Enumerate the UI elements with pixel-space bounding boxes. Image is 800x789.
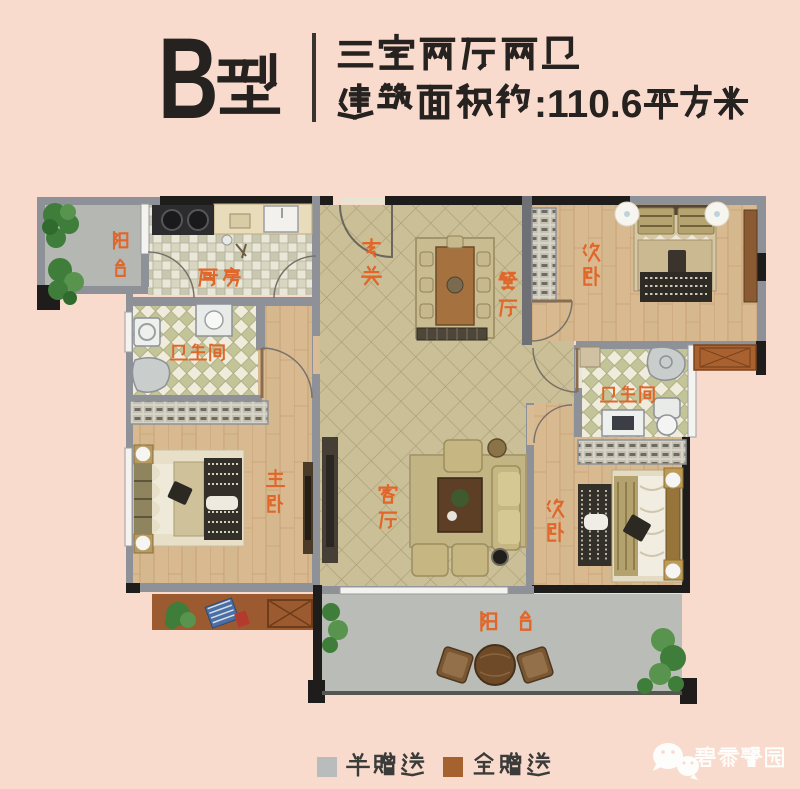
svg-text::110.6: :110.6 bbox=[534, 83, 642, 126]
svg-text:B: B bbox=[158, 15, 219, 143]
